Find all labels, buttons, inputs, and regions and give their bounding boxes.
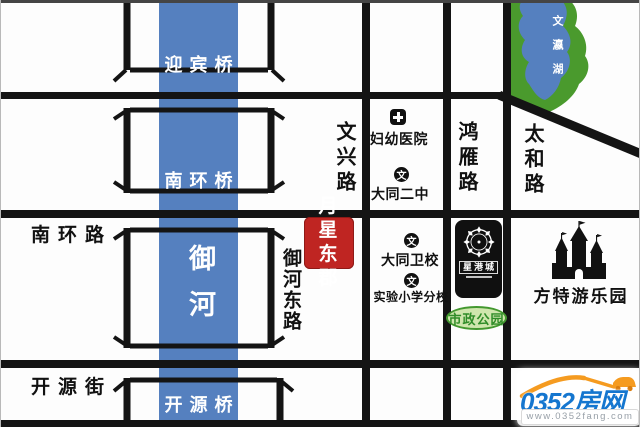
taihe-road-line [503, 0, 511, 427]
school-icon: 文 [394, 167, 409, 182]
municipal-park-label: 市政公园 [448, 309, 504, 328]
datong-health-school-label: 大同卫校 [377, 250, 443, 270]
hongyan-road-label: 鸿雁路 [452, 121, 481, 196]
site-watermark-logo: 0352房网 www.0352fang.com [517, 370, 640, 426]
school-icon: 文 [404, 233, 419, 248]
property-badge: 月星东郡 [304, 217, 354, 269]
river-label: 御河 [181, 244, 220, 336]
mall-emblem-icon [462, 225, 496, 259]
property-badge-label: 月星东郡 [310, 195, 348, 291]
datong-no2-school-label: 大同二中 [367, 184, 433, 204]
star-harbor-mall-logo: 星港城 [455, 220, 502, 298]
fantawild-park-label: 方特游乐园 [525, 282, 637, 307]
castle-icon [552, 221, 606, 279]
municipal-park-badge: 市政公园 [446, 306, 507, 330]
hospital-cross-icon [390, 109, 406, 125]
nanhuan-road-label: 南环路 [31, 220, 112, 247]
wenxing-road-line [362, 0, 370, 427]
experimental-primary-label: 实验小学分校 [372, 288, 450, 305]
hospital-label: 妇幼医院 [366, 129, 432, 149]
yingbin-bridge-label: 迎宾桥 [116, 51, 281, 77]
kaiyuan-street-line [1, 360, 640, 368]
watermark-url: www.0352fang.com [521, 409, 639, 425]
yuhe-east-road-label: 御河东路 [277, 248, 304, 332]
nanhuan-bridge-label: 南环桥 [116, 167, 281, 193]
location-map: 文瀛湖 [0, 0, 640, 427]
kaiyuan-bridge-label: 开源桥 [116, 391, 281, 417]
horizontal-road-1 [1, 92, 511, 99]
wenxing-road-label: 文兴路 [330, 121, 359, 196]
mall-caption-line [466, 276, 492, 278]
mall-name-label: 星港城 [459, 261, 498, 274]
kaiyuan-street-label: 开源街 [31, 372, 112, 399]
school-icon: 文 [404, 273, 419, 288]
taihe-road-label: 太和路 [518, 123, 547, 198]
map-top-border [1, 0, 640, 3]
lake-label: 文瀛湖 [549, 15, 565, 87]
hongyan-road-line [443, 0, 451, 427]
